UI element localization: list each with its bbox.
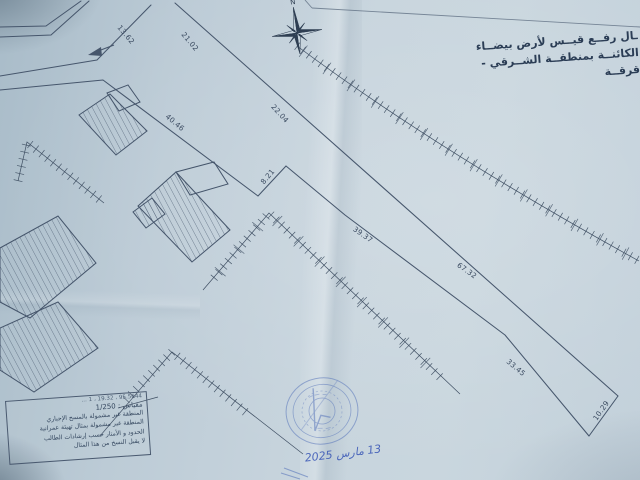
building <box>0 302 98 392</box>
scanned-survey-plan-photo: N 13.62 21.02 40.46 22.04 8.21 39.37 67.… <box>0 0 640 480</box>
legend-box: 95.5644 ، 19.32 ، 1 … مقياس : 1/250 المن… <box>5 391 151 465</box>
paper-border <box>305 0 640 27</box>
road-arrow-icon <box>88 45 114 56</box>
stamp <box>280 371 364 451</box>
compass-north-label: N <box>290 0 296 7</box>
pen-scribble <box>281 468 308 479</box>
building <box>0 216 96 318</box>
buildings <box>0 85 230 392</box>
